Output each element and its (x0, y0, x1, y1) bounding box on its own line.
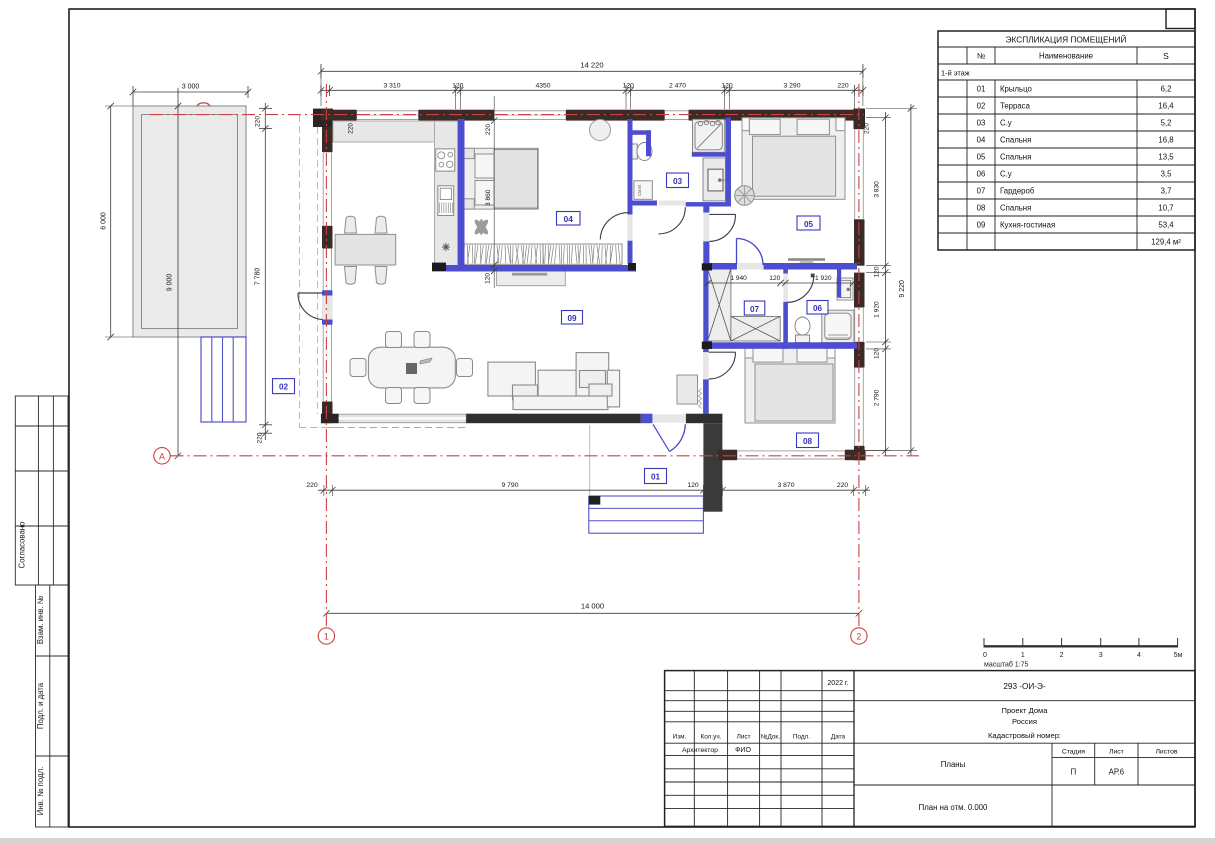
svg-text:С.у: С.у (1000, 119, 1012, 128)
svg-text:1: 1 (324, 632, 329, 642)
svg-text:220: 220 (864, 123, 871, 134)
svg-text:Кадастровый номер:: Кадастровый номер: (988, 731, 1061, 740)
svg-text:Спальня: Спальня (1000, 136, 1031, 145)
svg-text:1: 1 (1021, 652, 1025, 659)
svg-text:220: 220 (485, 124, 492, 135)
svg-text:7 780: 7 780 (255, 268, 262, 286)
svg-text:Взам. инв. №: Взам. инв. № (36, 596, 45, 644)
svg-text:3 290: 3 290 (783, 82, 800, 89)
svg-text:07: 07 (750, 305, 760, 314)
svg-text:220: 220 (837, 482, 849, 489)
svg-text:2 790: 2 790 (874, 389, 881, 406)
svg-text:Лист: Лист (737, 734, 751, 741)
svg-text:Стадия: Стадия (1062, 749, 1085, 756)
svg-text:04: 04 (564, 215, 574, 224)
svg-text:3 830: 3 830 (874, 181, 881, 198)
svg-text:6 000: 6 000 (101, 212, 108, 230)
svg-text:0: 0 (983, 652, 987, 659)
svg-text:08: 08 (977, 204, 986, 213)
svg-text:2: 2 (1060, 652, 1064, 659)
svg-text:ФИО: ФИО (735, 747, 751, 754)
svg-text:120: 120 (485, 273, 492, 284)
svg-text:01: 01 (977, 85, 986, 94)
svg-text:ЭКСПЛИКАЦИЯ ПОМЕЩЕНИЙ: ЭКСПЛИКАЦИЯ ПОМЕЩЕНИЙ (1006, 34, 1127, 45)
svg-text:3,7: 3,7 (1161, 187, 1172, 196)
svg-text:16,8: 16,8 (1158, 136, 1173, 145)
svg-text:П: П (1071, 768, 1077, 777)
svg-text:Кухня-гостиная: Кухня-гостиная (1000, 221, 1055, 230)
svg-text:220: 220 (257, 432, 264, 443)
svg-text:Россия: Россия (1012, 717, 1037, 726)
svg-text:06: 06 (813, 304, 823, 313)
svg-text:2022 г.: 2022 г. (827, 680, 848, 687)
svg-text:Терраса: Терраса (1000, 102, 1031, 111)
svg-text:120: 120 (769, 275, 780, 282)
svg-text:120: 120 (687, 482, 699, 489)
svg-text:120: 120 (623, 82, 635, 89)
svg-text:5,2: 5,2 (1161, 119, 1172, 128)
svg-text:Крыльцо: Крыльцо (1000, 85, 1032, 94)
svg-text:2: 2 (856, 632, 861, 642)
svg-text:Проект Дома: Проект Дома (1001, 706, 1048, 715)
svg-text:120: 120 (874, 348, 881, 359)
svg-text:05: 05 (977, 153, 986, 162)
svg-text:Инв. № подл.: Инв. № подл. (36, 767, 45, 816)
svg-text:13,5: 13,5 (1158, 153, 1174, 162)
svg-text:02: 02 (977, 102, 986, 111)
svg-text:3 310: 3 310 (383, 82, 400, 89)
svg-text:5м: 5м (1174, 652, 1183, 659)
svg-text:1 920: 1 920 (815, 275, 832, 282)
svg-text:План на отм. 0.000: План на отм. 0.000 (919, 803, 988, 812)
svg-text:129,4 м²: 129,4 м² (1151, 238, 1181, 247)
svg-text:Согласовано: Согласовано (18, 521, 27, 569)
svg-text:120: 120 (874, 266, 881, 277)
svg-text:См.М.: См.М. (637, 184, 642, 196)
svg-text:3 000: 3 000 (182, 84, 200, 91)
svg-text:120: 120 (721, 82, 733, 89)
svg-text:06: 06 (977, 170, 986, 179)
svg-text:07: 07 (977, 187, 986, 196)
svg-text:Наименование: Наименование (1039, 52, 1093, 61)
svg-text:120: 120 (452, 82, 464, 89)
svg-text:03: 03 (673, 177, 683, 186)
svg-text:9 790: 9 790 (501, 482, 518, 489)
svg-text:2 470: 2 470 (669, 82, 686, 89)
svg-text:14 220: 14 220 (580, 61, 603, 70)
svg-text:220: 220 (255, 116, 262, 127)
svg-text:Гардероб: Гардероб (1000, 187, 1035, 196)
svg-text:09: 09 (977, 221, 986, 230)
svg-text:масштаб 1:75: масштаб 1:75 (984, 661, 1029, 669)
svg-text:04: 04 (977, 136, 986, 145)
svg-text:4350: 4350 (535, 82, 550, 89)
svg-text:1-й этаж: 1-й этаж (941, 69, 970, 78)
svg-text:Спальня: Спальня (1000, 153, 1031, 162)
svg-text:293 -ОИ-Э-: 293 -ОИ-Э- (1003, 682, 1046, 691)
svg-text:16,4: 16,4 (1158, 102, 1174, 111)
svg-text:Архитектор: Архитектор (682, 747, 718, 754)
svg-text:Подл.: Подл. (793, 734, 810, 741)
svg-text:220: 220 (837, 82, 849, 89)
svg-text:220: 220 (306, 482, 318, 489)
svg-text:Лист: Лист (1109, 749, 1124, 756)
svg-text:Листов: Листов (1155, 749, 1177, 756)
svg-text:53,4: 53,4 (1158, 221, 1174, 230)
svg-text:10,7: 10,7 (1158, 204, 1173, 213)
svg-text:03: 03 (977, 119, 986, 128)
svg-text:Изм.: Изм. (673, 734, 687, 741)
svg-text:3 860: 3 860 (485, 189, 492, 206)
svg-text:S: S (1163, 51, 1169, 61)
svg-text:3 870: 3 870 (777, 482, 794, 489)
svg-text:02: 02 (279, 383, 289, 392)
svg-text:№Док.: №Док. (761, 734, 781, 741)
svg-text:Планы: Планы (941, 760, 966, 769)
svg-text:Дата: Дата (831, 734, 846, 741)
svg-text:220: 220 (347, 123, 354, 134)
svg-text:05: 05 (804, 220, 814, 229)
svg-text:9 000: 9 000 (167, 274, 174, 292)
svg-text:6,2: 6,2 (1161, 85, 1172, 94)
svg-text:A: A (159, 451, 165, 461)
svg-text:3: 3 (1099, 652, 1103, 659)
svg-text:1 940: 1 940 (730, 275, 747, 282)
svg-text:С.у: С.у (1000, 170, 1012, 179)
svg-text:14 000: 14 000 (581, 601, 604, 610)
svg-text:Спальня: Спальня (1000, 204, 1031, 213)
svg-text:1 920: 1 920 (874, 301, 881, 318)
svg-text:№: № (977, 52, 985, 61)
svg-text:Кол.уч.: Кол.уч. (701, 734, 722, 741)
svg-text:9 220: 9 220 (899, 280, 906, 298)
svg-text:4: 4 (1137, 652, 1141, 659)
svg-text:АР.6: АР.6 (1109, 768, 1124, 777)
svg-text:Подл. и дата: Подл. и дата (36, 682, 45, 729)
svg-text:08: 08 (803, 437, 813, 446)
svg-text:09: 09 (567, 314, 577, 323)
svg-text:3,5: 3,5 (1161, 170, 1173, 179)
svg-text:01: 01 (651, 473, 661, 482)
